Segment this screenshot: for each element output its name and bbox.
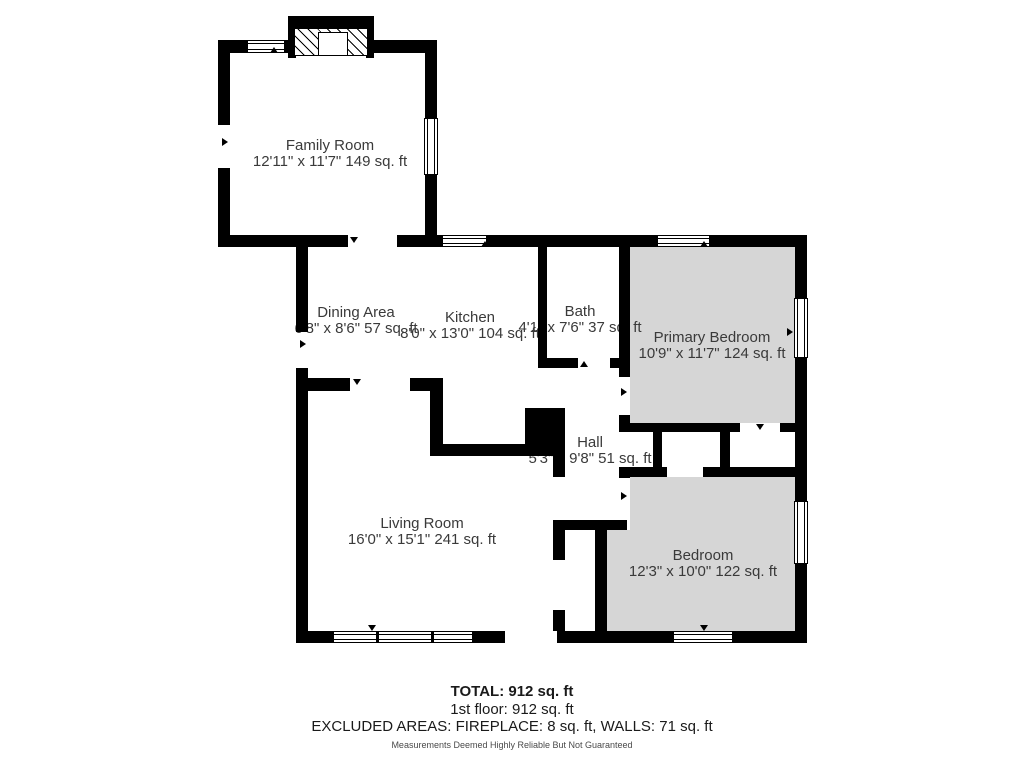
fireplace-firebox (318, 32, 348, 56)
wall (733, 631, 807, 643)
door-arrow-icon (580, 521, 588, 527)
wall (296, 368, 308, 643)
wall (473, 631, 505, 643)
door-arrow-icon (481, 241, 489, 247)
wall (296, 378, 350, 391)
floor-plan: Family Room 12'11" x 11'7" 149 sq. ft Di… (0, 0, 1024, 768)
room-name: Bath (499, 304, 661, 320)
door-arrow-icon (270, 47, 278, 53)
room-name: Family Room (230, 138, 430, 154)
total-area-text: TOTAL: 912 sq. ft (0, 683, 1024, 700)
wall (296, 235, 308, 332)
wall (795, 235, 807, 643)
door-arrow-icon (580, 361, 588, 367)
wall (487, 235, 657, 247)
window-icon (333, 631, 473, 643)
room-dims: 12'3" x 10'0" 122 sq. ft (603, 564, 803, 580)
room-dims: 12'11" x 11'7" 149 sq. ft (230, 154, 430, 170)
window-icon (424, 118, 438, 175)
door-arrow-icon (621, 492, 627, 500)
room-name: Living Room (322, 516, 522, 532)
door-arrow-icon (787, 328, 793, 336)
door-arrow-icon (368, 625, 376, 631)
window-icon (794, 501, 808, 564)
wall (397, 235, 442, 247)
room-label-family-room: Family Room 12'11" x 11'7" 149 sq. ft (230, 138, 430, 170)
wall (538, 358, 578, 368)
wall (720, 432, 730, 467)
room-label-living-room: Living Room 16'0" x 15'1" 241 sq. ft (322, 516, 522, 548)
wall (538, 235, 547, 367)
wall (430, 378, 443, 456)
wall (619, 235, 630, 377)
wall (710, 235, 807, 247)
door-arrow-icon (222, 138, 228, 146)
door-arrow-icon (350, 237, 358, 243)
window-mullion (431, 632, 434, 642)
wall (619, 423, 740, 432)
disclaimer-text: Measurements Deemed Highly Reliable But … (0, 740, 1024, 750)
door-arrow-icon (704, 469, 712, 475)
wall (553, 456, 565, 477)
window-icon (794, 298, 808, 358)
room-dims: 16'0" x 15'1" 241 sq. ft (322, 532, 522, 548)
room-name: Primary Bedroom (612, 330, 812, 346)
wall (218, 235, 348, 247)
door-arrow-icon (300, 340, 306, 348)
window-mullion (376, 632, 379, 642)
floor-area-text: 1st floor: 912 sq. ft (0, 701, 1024, 718)
window-icon (673, 631, 733, 643)
room-name: Bedroom (603, 548, 803, 564)
wall (619, 467, 667, 477)
wall (703, 467, 795, 477)
door-arrow-icon (298, 534, 304, 542)
wall (553, 530, 565, 560)
room-label-bedroom: Bedroom 12'3" x 10'0" 122 sq. ft (603, 548, 803, 580)
wall (780, 423, 795, 432)
excluded-areas-text: EXCLUDED AREAS: FIREPLACE: 8 sq. ft, WAL… (0, 718, 1024, 735)
wall (553, 520, 627, 530)
door-arrow-icon (621, 388, 627, 396)
door-arrow-icon (700, 241, 708, 247)
chimney-block (525, 408, 565, 456)
room-label-primary-bedroom: Primary Bedroom 10'9" x 11'7" 124 sq. ft (612, 330, 812, 362)
wall (595, 530, 607, 631)
room-dims: 10'9" x 11'7" 124 sq. ft (612, 346, 812, 362)
door-arrow-icon (700, 625, 708, 631)
wall (653, 432, 662, 467)
wall (553, 610, 565, 631)
door-arrow-icon (478, 445, 486, 451)
wall (557, 631, 673, 643)
wall (218, 40, 230, 125)
door-arrow-icon (756, 424, 764, 430)
window-icon (247, 40, 285, 53)
door-arrow-icon (353, 379, 361, 385)
